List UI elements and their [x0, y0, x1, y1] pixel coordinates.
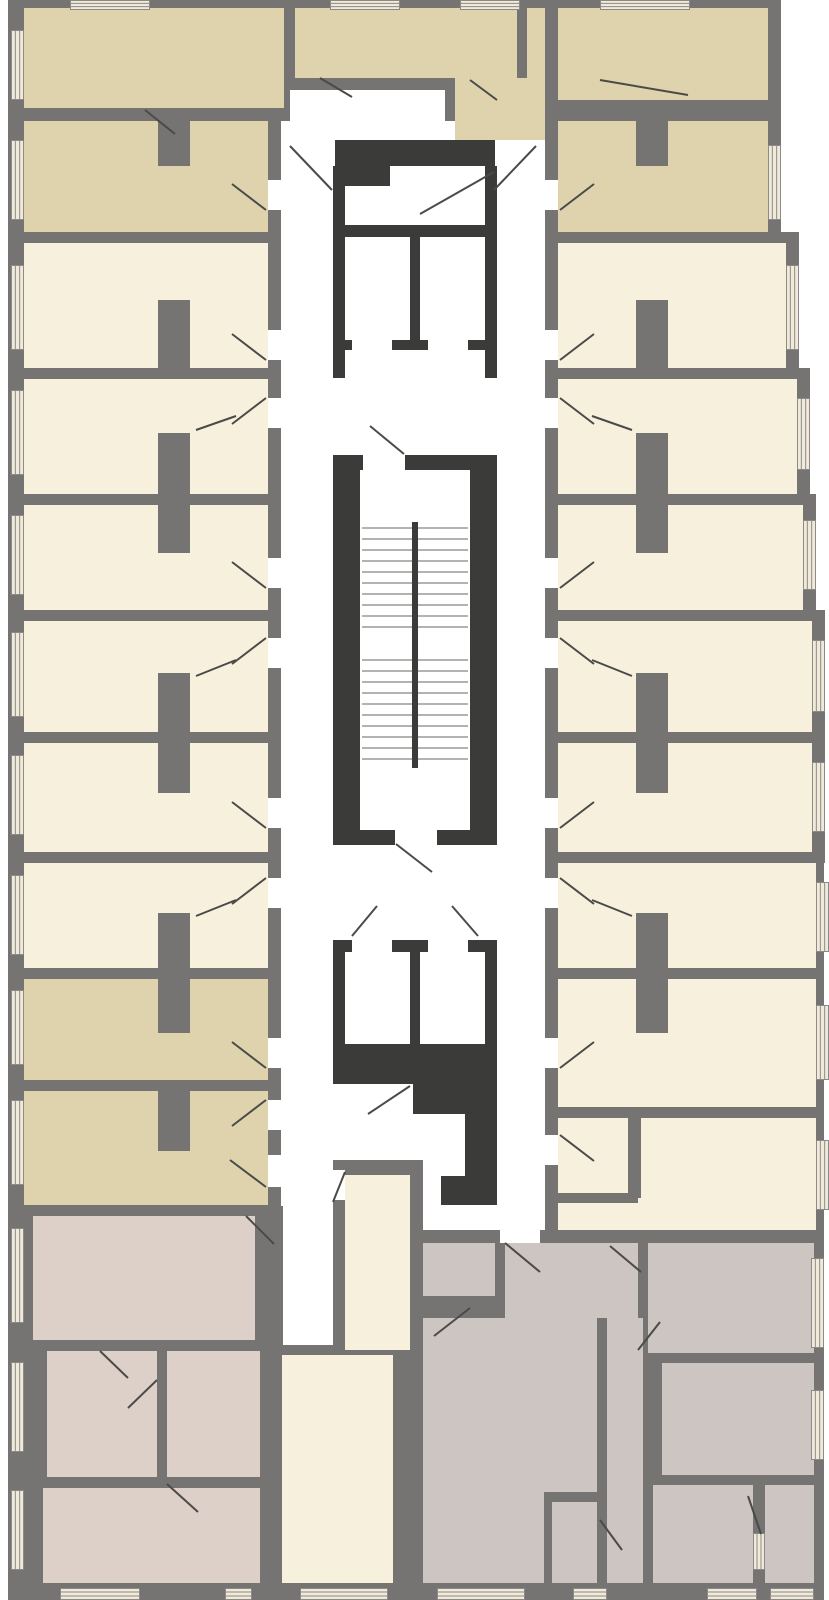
apartment-room[interactable] [558, 743, 812, 852]
corridor [281, 1160, 333, 1206]
partition-wall [628, 1118, 641, 1198]
window [768, 145, 781, 220]
core-wall [413, 1084, 497, 1114]
apartment-room[interactable] [558, 621, 812, 732]
partition-wall [636, 121, 668, 166]
apartment-room[interactable] [295, 8, 455, 78]
apartment-room[interactable] [558, 863, 816, 968]
apartment-room[interactable] [282, 1355, 393, 1583]
apartment-room[interactable] [648, 1243, 814, 1353]
partition-wall [636, 300, 668, 368]
window [11, 390, 24, 475]
door-opening [363, 455, 405, 470]
window [816, 1005, 829, 1080]
apartment-room[interactable] [24, 8, 284, 108]
door-opening [395, 830, 437, 845]
door-opening [428, 938, 468, 952]
partition-wall [544, 1492, 598, 1502]
shaft-interior [345, 952, 410, 1044]
apartment-room[interactable] [455, 8, 545, 140]
window [786, 265, 799, 350]
door-opening [268, 878, 281, 908]
door-opening [545, 398, 558, 428]
apartment-room[interactable] [43, 1488, 260, 1583]
door-opening [268, 558, 281, 588]
window [11, 990, 24, 1065]
apartment-room[interactable] [423, 1318, 597, 1583]
apartment-room[interactable] [24, 863, 268, 968]
apartment-room[interactable] [47, 1351, 157, 1477]
window [600, 0, 690, 10]
core-wall [470, 470, 497, 830]
partition-wall [158, 121, 190, 166]
window [11, 265, 24, 350]
core-wall [333, 1056, 497, 1084]
core-wall [333, 350, 345, 378]
apartment-room[interactable] [24, 379, 268, 494]
core-wall [333, 470, 360, 830]
door-opening [428, 340, 468, 352]
window [11, 632, 24, 717]
apartment-room[interactable] [558, 505, 803, 610]
core-wall [465, 1114, 497, 1176]
partition-wall [636, 913, 668, 1033]
apartment-room[interactable] [33, 1216, 255, 1340]
door-opening [545, 1038, 558, 1068]
window [707, 1588, 757, 1600]
core-wall [333, 455, 497, 470]
window [60, 1588, 140, 1600]
window [11, 140, 24, 220]
apartment-room[interactable] [558, 1118, 816, 1230]
partition-wall [517, 8, 527, 78]
window [753, 1533, 765, 1570]
door-opening [545, 1135, 558, 1165]
door-opening [268, 1038, 281, 1068]
door-opening [268, 398, 281, 428]
apartment-room[interactable] [24, 121, 268, 232]
door-opening [268, 330, 281, 360]
apartment-room[interactable] [607, 1318, 643, 1583]
window [11, 1362, 24, 1452]
window [811, 1390, 824, 1460]
apartment-room[interactable] [24, 1091, 268, 1205]
door-opening [545, 180, 558, 210]
partition-wall [158, 1091, 190, 1151]
window [816, 1140, 829, 1210]
door-opening [500, 1230, 540, 1243]
door-opening [545, 798, 558, 828]
door-opening [545, 558, 558, 588]
partition-wall [544, 1502, 552, 1583]
window [11, 30, 24, 100]
window [11, 875, 24, 955]
apartment-room[interactable] [558, 243, 786, 368]
floor-plan [0, 0, 829, 1600]
door-opening [545, 638, 558, 668]
apartment-room[interactable] [558, 979, 816, 1107]
shaft-interior [420, 237, 485, 340]
window [70, 0, 150, 10]
window [803, 520, 816, 590]
window [330, 0, 400, 10]
partition-wall [636, 673, 668, 793]
window [11, 755, 24, 835]
core-wall [485, 350, 497, 378]
partition-wall [158, 300, 190, 368]
window [11, 1490, 24, 1570]
window [770, 1588, 814, 1600]
partition-wall [158, 673, 190, 793]
window [460, 0, 520, 10]
door-opening [268, 638, 281, 668]
apartment-room[interactable] [765, 1485, 814, 1583]
apartment-room[interactable] [24, 505, 268, 610]
door-opening [352, 938, 392, 952]
door-opening [268, 1155, 281, 1187]
corridor [290, 90, 445, 121]
apartment-room[interactable] [505, 1243, 638, 1318]
window [11, 1100, 24, 1185]
stair-stringer [412, 522, 418, 768]
window [11, 1228, 24, 1323]
partition-wall [158, 913, 190, 1033]
window [811, 1258, 824, 1348]
door-opening [545, 330, 558, 360]
floor-plan-page [0, 0, 829, 1600]
shaft-interior [345, 237, 410, 340]
apartment-room[interactable] [653, 1485, 753, 1583]
apartment-room[interactable] [167, 1351, 260, 1477]
partition-wall [636, 433, 668, 553]
apartment-room[interactable] [558, 8, 768, 100]
window [797, 398, 810, 470]
apartment-room[interactable] [345, 1175, 410, 1350]
partition-wall [558, 1193, 638, 1203]
shaft-interior [420, 952, 485, 1044]
apartment-room[interactable] [24, 621, 268, 732]
door-opening [352, 340, 392, 352]
partition-wall [158, 433, 190, 553]
door-opening [268, 180, 281, 210]
apartment-room[interactable] [423, 1243, 495, 1296]
apartment-room[interactable] [558, 379, 797, 494]
window [11, 515, 24, 595]
apartment-room[interactable] [24, 243, 268, 368]
window [573, 1588, 607, 1600]
door-opening [268, 798, 281, 828]
door-opening [268, 1100, 281, 1130]
apartment-room[interactable] [24, 743, 268, 852]
apartment-room[interactable] [24, 979, 268, 1080]
window [812, 640, 825, 712]
core-wall [441, 1176, 497, 1205]
window [225, 1588, 252, 1600]
core-wall [333, 166, 345, 225]
window [300, 1588, 388, 1600]
door-opening [545, 878, 558, 908]
window [437, 1588, 525, 1600]
apartment-room[interactable] [662, 1363, 814, 1475]
window [812, 762, 825, 832]
window [816, 882, 829, 952]
